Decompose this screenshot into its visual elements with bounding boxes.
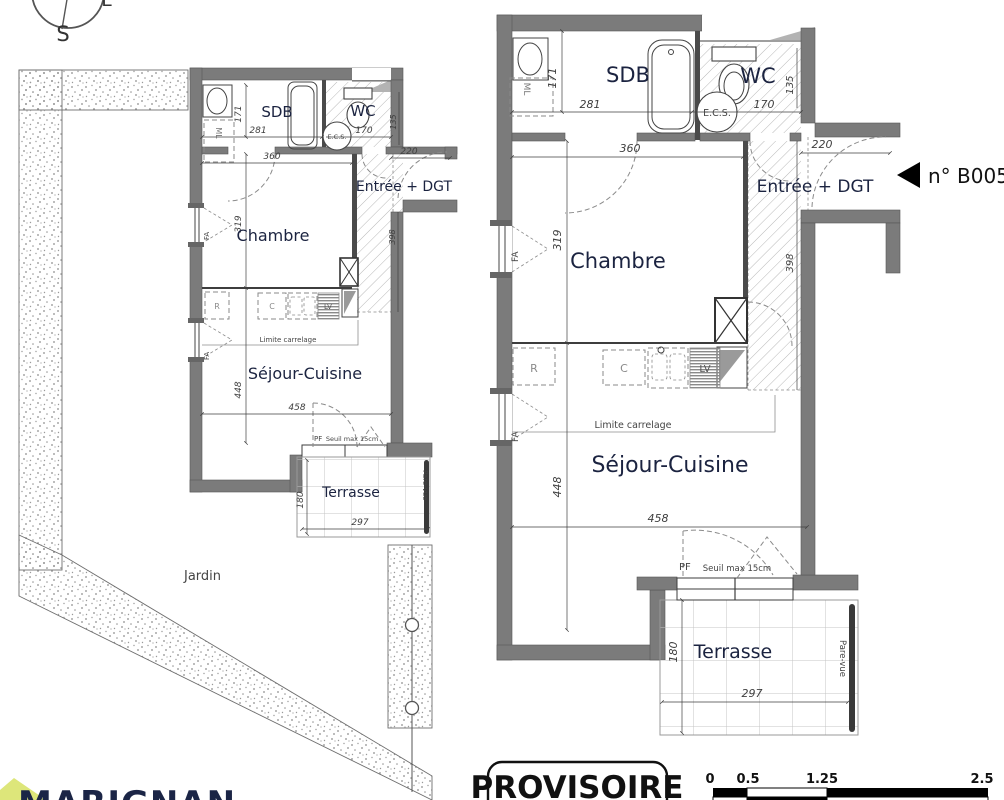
wc-label: WC <box>740 64 775 88</box>
dim-398: 398 <box>388 229 397 244</box>
dim-281: 281 <box>580 98 601 111</box>
toilet-icon <box>344 88 372 99</box>
dim-448: 448 <box>234 381 244 398</box>
chambre-label: Chambre <box>570 249 666 273</box>
dim-319: 319 <box>551 230 564 251</box>
dim-360: 360 <box>263 152 280 162</box>
unit-arrow-icon <box>897 162 920 188</box>
boundary-post-icon <box>406 619 419 632</box>
sejour-label: Séjour-Cuisine <box>591 453 748 478</box>
ecs-label: E.C.S. <box>703 108 731 119</box>
pare-vue-label: Pare-vue <box>421 470 429 500</box>
dim-135: 135 <box>389 114 398 129</box>
scale-tick-05: 0.5 <box>736 772 759 787</box>
site-plan: Jardin <box>19 68 457 800</box>
floorplan-canvas: S E Jardin <box>0 0 1004 800</box>
sejour-label: Séjour-Cuisine <box>248 364 362 383</box>
dim-180: 180 <box>667 642 680 663</box>
logo-text: MARIGNAN <box>18 784 236 800</box>
logo: MARIGNAN <box>0 778 236 800</box>
compass: S E <box>32 0 113 46</box>
dim-170: 170 <box>754 98 775 111</box>
dim-171: 171 <box>234 105 244 122</box>
dim-135: 135 <box>785 75 796 94</box>
unit-number: n° B005 <box>928 164 1004 188</box>
dim-297: 297 <box>742 687 763 700</box>
dim-360: 360 <box>620 142 641 155</box>
fridge-label: R <box>214 302 220 311</box>
window-icon <box>188 203 204 247</box>
fa-label: FA <box>203 232 211 240</box>
dim-458: 458 <box>648 512 669 525</box>
jardin-label: Jardin <box>183 569 221 584</box>
washing-machine-box <box>204 120 234 162</box>
scale-tick-125: 1.25 <box>806 772 838 787</box>
cooktop-label: C <box>269 302 275 311</box>
pare-vue-label: Pare-vue <box>837 640 847 677</box>
ml-label: ML <box>214 127 223 139</box>
toilet-icon <box>712 47 756 61</box>
scale-tick-25: 2.5 <box>970 772 993 787</box>
window-icon <box>490 220 512 278</box>
dim-170: 170 <box>355 126 372 136</box>
bathtub-icon <box>648 40 694 133</box>
dim-458: 458 <box>288 403 305 413</box>
chambre-label: Chambre <box>237 226 310 245</box>
pf-label: PF <box>679 562 691 573</box>
unit-marker: n° B005 <box>897 162 1004 188</box>
limite-carrelage-label: Limite carrelage <box>594 420 671 431</box>
dim-448: 448 <box>551 477 564 498</box>
entree-label: Entrée + DGT <box>356 179 453 195</box>
limite-carrelage-label: Limite carrelage <box>260 336 317 344</box>
fridge-label: R <box>530 362 538 375</box>
cooktop-label: C <box>620 362 628 375</box>
boundary-post-icon <box>406 702 419 715</box>
ml-label: ML <box>521 83 531 96</box>
seuil-label: Seuil max 15cm <box>703 564 771 574</box>
pare-vue-screen <box>849 604 855 732</box>
window-icon <box>490 388 512 446</box>
dishwasher-label: LV <box>324 303 332 311</box>
pf-label: PF <box>314 435 322 443</box>
sink-icon <box>648 348 688 388</box>
floorplan-sheet: S E Jardin <box>0 0 1004 800</box>
scale-bar: 0 0.5 1.25 2.5 <box>705 772 993 800</box>
dim-171: 171 <box>546 68 559 89</box>
window-icon <box>188 318 204 362</box>
fa-label: FA <box>511 251 521 262</box>
dim-297: 297 <box>351 518 368 528</box>
dim-220: 220 <box>400 147 417 157</box>
compass-south-label: S <box>56 22 69 46</box>
sdb-label: SDB <box>261 103 292 121</box>
sdb-label: SDB <box>606 63 650 87</box>
seuil-label: Seuil max 15cm <box>326 435 378 443</box>
compass-east-label: E <box>101 0 112 11</box>
dim-180: 180 <box>296 491 306 508</box>
stamp-text: PROVISOIRE <box>471 770 684 800</box>
dim-220: 220 <box>812 138 833 151</box>
detail-plan: ML E.C.S. R C LV FA FA Limite carrelage <box>490 15 900 735</box>
wc-label: WC <box>350 102 375 120</box>
dim-398: 398 <box>785 253 796 272</box>
dim-281: 281 <box>249 126 266 136</box>
fa-label: FA <box>203 352 211 360</box>
stamp: PROVISOIRE <box>471 762 684 800</box>
terrasse-label: Terrasse <box>321 485 380 501</box>
terrasse-label: Terrasse <box>693 641 773 663</box>
scale-tick-0: 0 <box>705 772 714 787</box>
entree-label: Entrée + DGT <box>757 177 874 197</box>
dishwasher-label: LV <box>699 364 710 375</box>
